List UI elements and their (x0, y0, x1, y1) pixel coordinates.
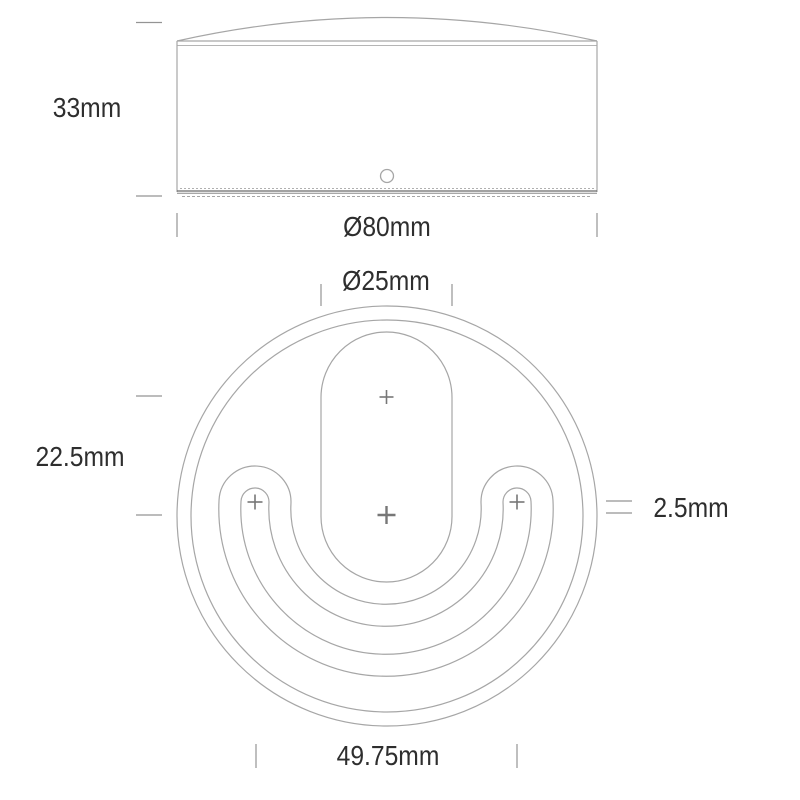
mounting-channel-outer-outline (219, 466, 553, 676)
side-diameter-label: Ø80mm (343, 211, 431, 243)
side-height-label: 33mm (53, 92, 121, 124)
side-view-dimension-ticks (136, 23, 597, 238)
screw-marker-slot-bottom (378, 506, 396, 524)
vertical-spacing-label: 22.5mm (35, 441, 124, 473)
horizontal-spacing-label: 49.75mm (337, 740, 440, 772)
bottom-view-dimension-ticks (136, 284, 632, 768)
screw-marker-slot-top (380, 390, 394, 404)
screw-center-markers (248, 390, 525, 524)
center-slot-outline (321, 332, 452, 582)
side-view-drawing (177, 18, 597, 197)
side-view-base-lines (177, 191, 597, 193)
screw-marker-channel-left (248, 495, 263, 510)
front-indicator-circle (381, 170, 394, 183)
screw-marker-channel-right (510, 495, 525, 510)
technical-drawing-canvas: 33mm Ø80mm Ø25mm 22.5mm 2.5mm 49.75mm (0, 0, 800, 800)
ring-gap-label: 2.5mm (653, 492, 728, 524)
slot-diameter-label: Ø25mm (342, 265, 430, 297)
device-dome-outline (177, 18, 597, 42)
